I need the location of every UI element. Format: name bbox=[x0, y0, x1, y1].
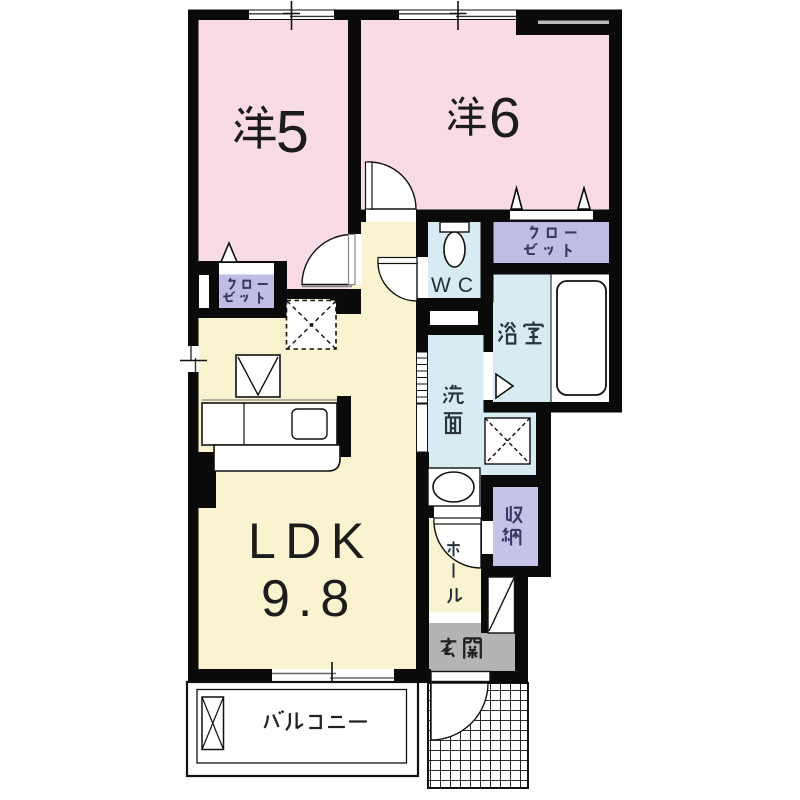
svg-text:LDK: LDK bbox=[248, 513, 374, 569]
svg-text:6: 6 bbox=[489, 86, 521, 150]
svg-text:WC: WC bbox=[431, 274, 480, 297]
svg-text:5: 5 bbox=[276, 99, 309, 165]
svg-text:9.8: 9.8 bbox=[261, 570, 357, 628]
